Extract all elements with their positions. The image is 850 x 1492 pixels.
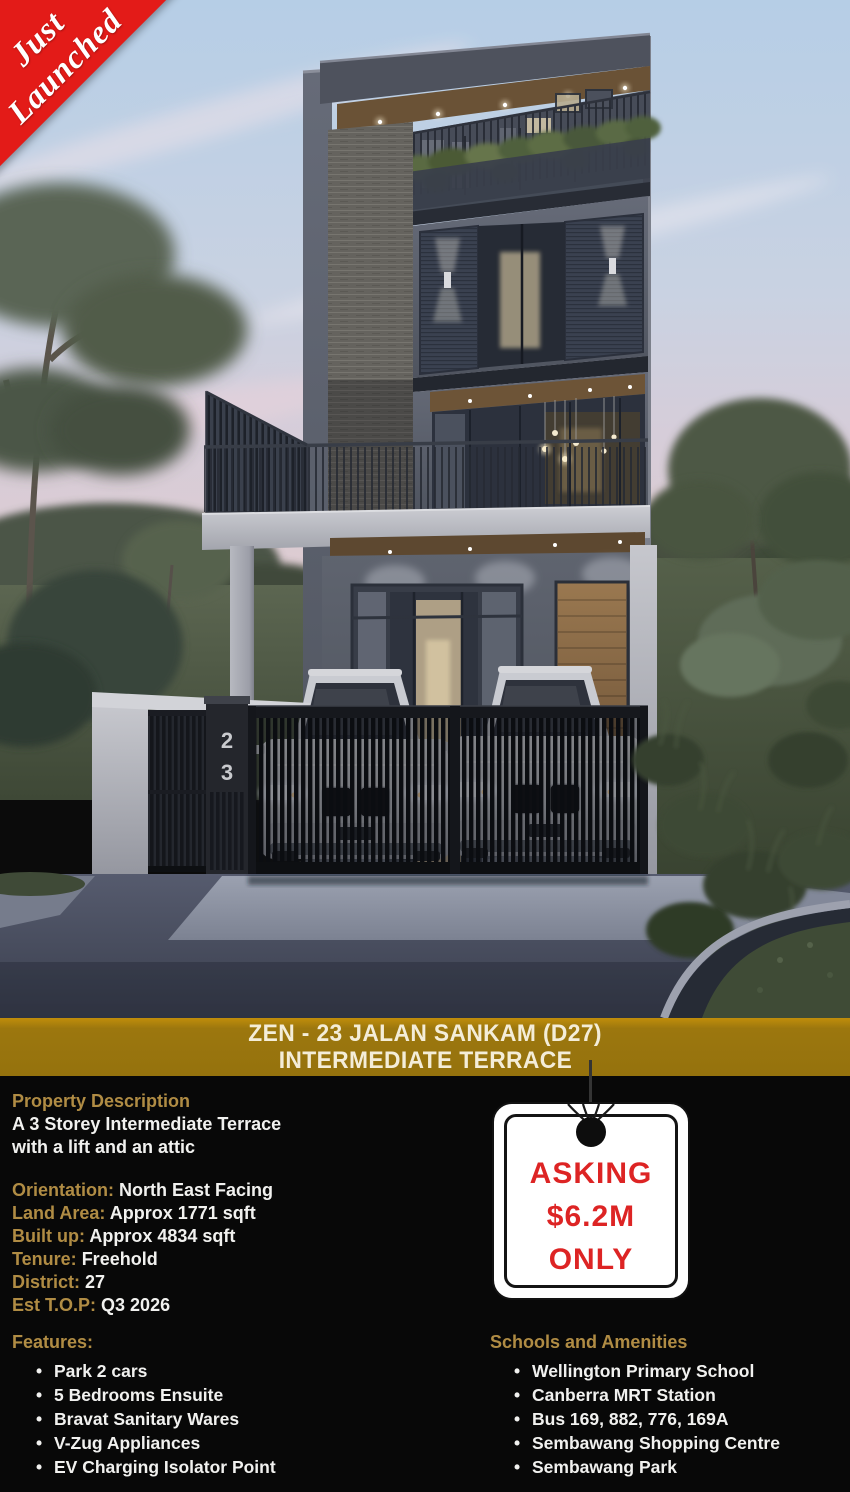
amenity-item: •Sembawang Shopping Centre bbox=[514, 1431, 838, 1455]
spec-label: Built up: bbox=[12, 1226, 85, 1246]
spec-label: District: bbox=[12, 1272, 80, 1292]
bullet-icon: • bbox=[514, 1359, 532, 1383]
spec-label: Est T.O.P: bbox=[12, 1295, 96, 1315]
feature-text: Park 2 cars bbox=[54, 1359, 147, 1383]
amenity-item: •Bus 169, 882, 776, 169A bbox=[514, 1407, 838, 1431]
bullet-icon: • bbox=[36, 1383, 54, 1407]
bullet-icon: • bbox=[514, 1431, 532, 1455]
spec-row-orientation: Orientation: North East Facing bbox=[12, 1179, 838, 1202]
house-number-pillar: 2 3 bbox=[204, 696, 250, 876]
bullet-icon: • bbox=[514, 1383, 532, 1407]
spec-value: 27 bbox=[85, 1272, 105, 1292]
feature-text: 5 Bedrooms Ensuite bbox=[54, 1383, 223, 1407]
description-heading: Property Description bbox=[12, 1090, 838, 1113]
title-banner: ZEN - 23 JALAN SANKAM (D27) INTERMEDIATE… bbox=[0, 1018, 850, 1076]
amenities-heading: Schools and Amenities bbox=[490, 1331, 838, 1354]
spec-list: Orientation: North East Facing Land Area… bbox=[12, 1179, 838, 1317]
price-tag: ASKING $6.2M ONLY bbox=[492, 1102, 690, 1300]
spec-value: Approx 1771 sqft bbox=[110, 1203, 256, 1223]
feature-item: •V-Zug Appliances bbox=[36, 1431, 490, 1455]
amenity-text: Sembawang Shopping Centre bbox=[532, 1431, 780, 1455]
amenity-item: •Wellington Primary School bbox=[514, 1359, 838, 1383]
asking-price: ASKING $6.2M ONLY bbox=[494, 1152, 688, 1281]
amenity-text: Wellington Primary School bbox=[532, 1359, 754, 1383]
features-heading: Features: bbox=[12, 1331, 490, 1354]
amenity-text: Bus 169, 882, 776, 169A bbox=[532, 1407, 729, 1431]
details-section: ASKING $6.2M ONLY Property Description A… bbox=[0, 1076, 850, 1492]
bullet-icon: • bbox=[36, 1455, 54, 1479]
spec-label: Tenure: bbox=[12, 1249, 77, 1269]
amenity-text: Canberra MRT Station bbox=[532, 1383, 716, 1407]
tag-string bbox=[589, 1060, 592, 1108]
feature-item: •Park 2 cars bbox=[36, 1359, 490, 1383]
banner-title-line1: ZEN - 23 JALAN SANKAM (D27) bbox=[248, 1020, 602, 1047]
spec-label: Orientation: bbox=[12, 1180, 114, 1200]
fence: 2 3 bbox=[92, 692, 648, 878]
bullet-icon: • bbox=[36, 1407, 54, 1431]
bullet-icon: • bbox=[514, 1407, 532, 1431]
spec-row-built-up: Built up: Approx 4834 sqft bbox=[12, 1225, 838, 1248]
spec-row-district: District: 27 bbox=[12, 1271, 838, 1294]
price-line3: ONLY bbox=[494, 1238, 688, 1281]
amenity-item: •Canberra MRT Station bbox=[514, 1383, 838, 1407]
features-block: Features: •Park 2 cars •5 Bedrooms Ensui… bbox=[12, 1331, 490, 1479]
feature-text: V-Zug Appliances bbox=[54, 1431, 200, 1455]
description-line: A 3 Storey Intermediate Terrace bbox=[12, 1113, 838, 1136]
amenities-list: •Wellington Primary School •Canberra MRT… bbox=[490, 1359, 838, 1479]
ribbon-band: Just Launched bbox=[0, 0, 224, 225]
feature-item: •5 Bedrooms Ensuite bbox=[36, 1383, 490, 1407]
house-number-digit-1: 2 bbox=[221, 728, 233, 753]
pedestrian-gate bbox=[148, 710, 206, 872]
spec-value: North East Facing bbox=[119, 1180, 273, 1200]
price-line1: ASKING bbox=[494, 1152, 688, 1195]
amenities-block: Schools and Amenities •Wellington Primar… bbox=[490, 1331, 838, 1479]
spec-value: Freehold bbox=[82, 1249, 158, 1269]
spec-row-land-area: Land Area: Approx 1771 sqft bbox=[12, 1202, 838, 1225]
banner-title-line2: INTERMEDIATE TERRACE bbox=[278, 1047, 571, 1074]
just-launched-ribbon: Just Launched bbox=[0, 0, 235, 235]
main-gate bbox=[248, 706, 648, 876]
description-line: with a lift and an attic bbox=[12, 1136, 838, 1159]
spec-value: Q3 2026 bbox=[101, 1295, 170, 1315]
price-line2: $6.2M bbox=[494, 1195, 688, 1238]
property-flyer: 2 3 bbox=[0, 0, 850, 1492]
feature-text: Bravat Sanitary Wares bbox=[54, 1407, 239, 1431]
ribbon-line2: Launched bbox=[0, 2, 130, 132]
features-list: •Park 2 cars •5 Bedrooms Ensuite •Bravat… bbox=[12, 1359, 490, 1479]
spec-row-top: Est T.O.P: Q3 2026 bbox=[12, 1294, 838, 1317]
house-number-digit-2: 3 bbox=[221, 760, 233, 785]
bullet-icon: • bbox=[36, 1431, 54, 1455]
feature-item: •Bravat Sanitary Wares bbox=[36, 1407, 490, 1431]
third-storey bbox=[413, 196, 648, 392]
feature-text: EV Charging Isolator Point bbox=[54, 1455, 276, 1479]
spec-value: Approx 4834 sqft bbox=[89, 1226, 235, 1246]
bullet-icon: • bbox=[514, 1455, 532, 1479]
spec-label: Land Area: bbox=[12, 1203, 105, 1223]
spec-row-tenure: Tenure: Freehold bbox=[12, 1248, 838, 1271]
feature-item: •EV Charging Isolator Point bbox=[36, 1455, 490, 1479]
bullet-icon: • bbox=[36, 1359, 54, 1383]
amenity-text: Sembawang Park bbox=[532, 1455, 677, 1479]
amenity-item: •Sembawang Park bbox=[514, 1455, 838, 1479]
tag-hole-icon bbox=[576, 1117, 606, 1147]
